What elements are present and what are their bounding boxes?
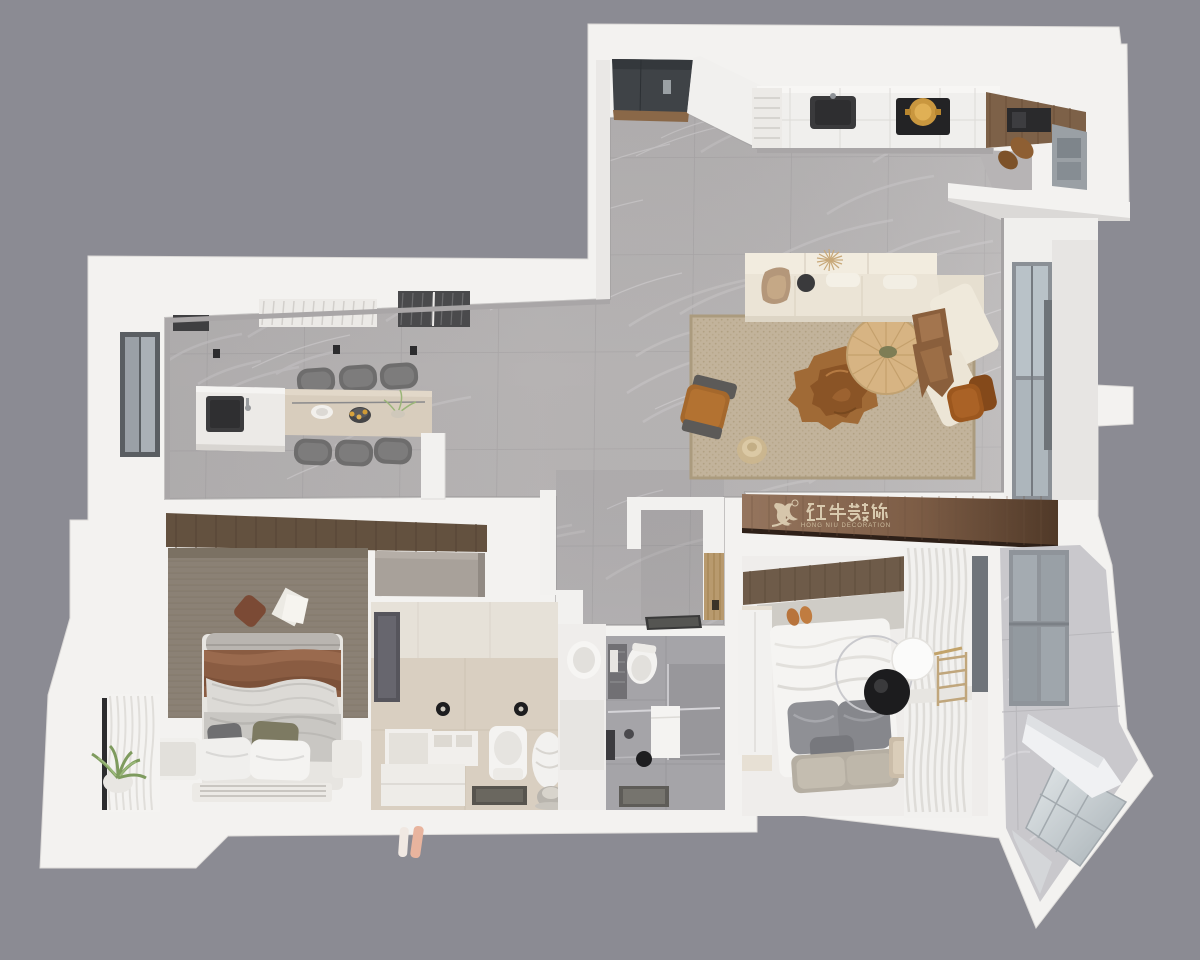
svg-text:HONG NIU DECORATION: HONG NIU DECORATION (801, 523, 891, 529)
